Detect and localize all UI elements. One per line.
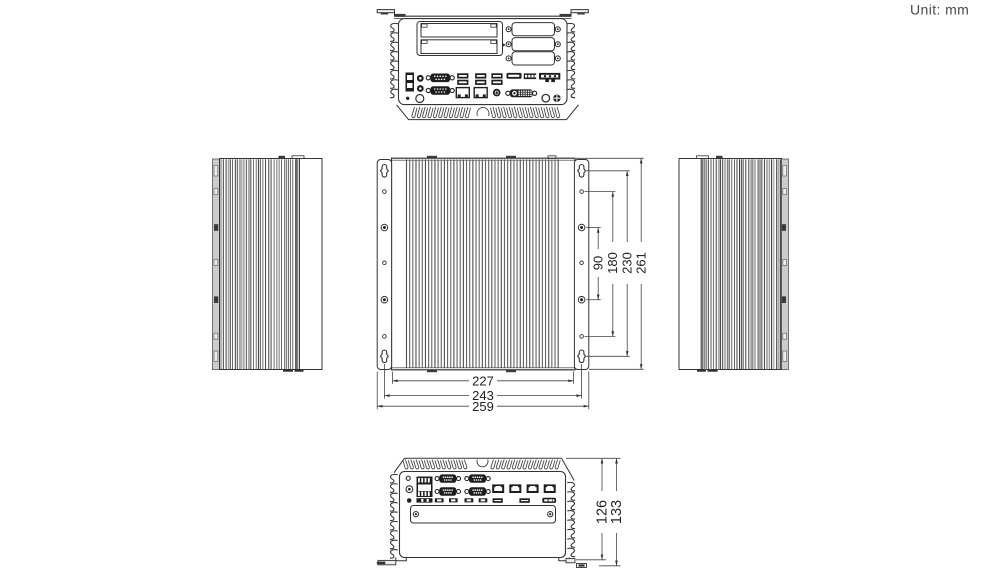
svg-text:180: 180 [605, 252, 620, 274]
svg-text:230: 230 [619, 252, 634, 274]
svg-text:259: 259 [472, 399, 494, 414]
svg-text:133: 133 [609, 500, 625, 524]
svg-text:261: 261 [633, 252, 648, 274]
svg-text:90: 90 [590, 256, 605, 270]
svg-text:227: 227 [472, 373, 494, 388]
svg-text:Unit: mm: Unit: mm [910, 2, 969, 18]
